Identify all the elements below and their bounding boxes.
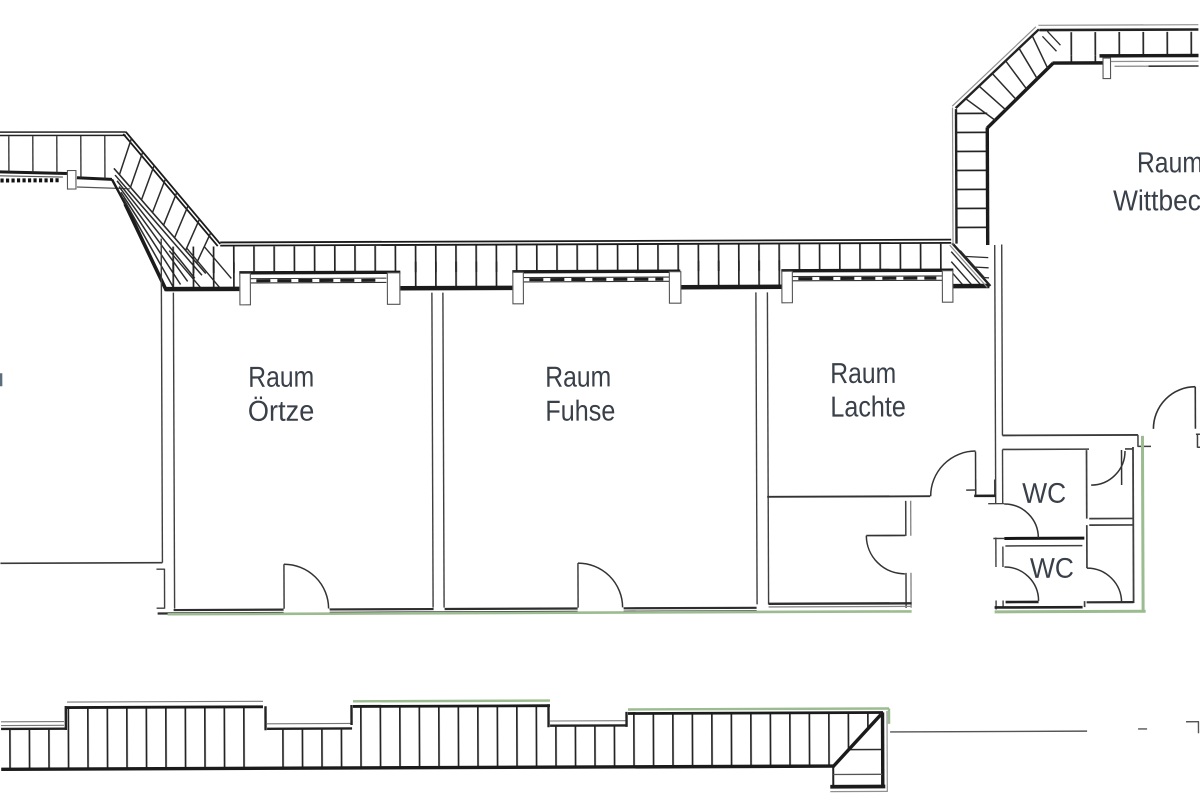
svg-text:Raum: Raum: [1137, 147, 1200, 179]
svg-text:Wittbeck: Wittbeck: [1113, 185, 1200, 217]
svg-text:Raum: Raum: [248, 362, 314, 394]
svg-text:WC: WC: [1022, 478, 1066, 510]
svg-text:Raum: Raum: [545, 361, 611, 393]
svg-text:Fuhse: Fuhse: [545, 395, 615, 427]
svg-text:WC: WC: [1030, 553, 1074, 585]
svg-text:Lachte: Lachte: [830, 391, 906, 423]
svg-text:Raum: Raum: [830, 358, 896, 390]
svg-text:Örtze: Örtze: [248, 396, 315, 428]
